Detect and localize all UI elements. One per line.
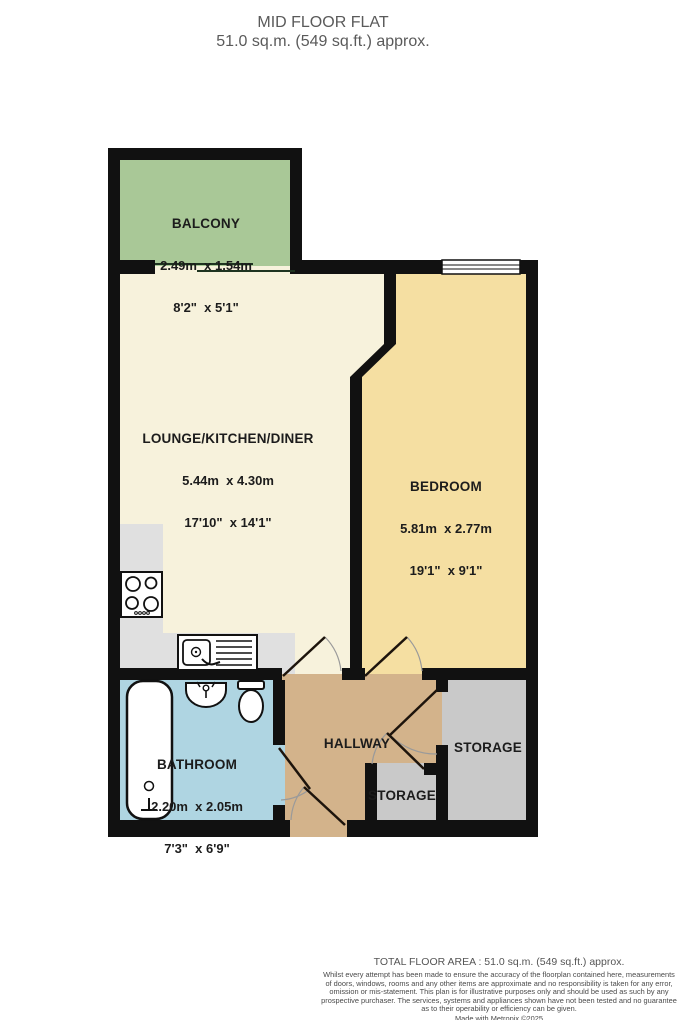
kitchen-sink-icon xyxy=(178,635,257,670)
wall xyxy=(342,668,365,680)
wall xyxy=(350,377,362,668)
window-icon xyxy=(442,260,520,274)
storage-large-label: STORAGE xyxy=(454,741,522,755)
wall xyxy=(108,148,120,274)
hallway-label: HALLWAY xyxy=(324,737,390,751)
plan-footer: TOTAL FLOOR AREA : 51.0 sq.m. (549 sq.ft… xyxy=(295,956,700,1020)
balcony-label: BALCONY 2.49m x 1.54m 8'2" x 5'1" xyxy=(160,189,252,343)
wall xyxy=(273,805,285,825)
wall xyxy=(347,820,538,837)
wall xyxy=(290,148,302,274)
wall xyxy=(108,148,302,160)
wall xyxy=(436,745,448,820)
disclaimer: Whilst every attempt has been made to en… xyxy=(295,971,700,1014)
wall xyxy=(422,668,538,680)
bathroom-label: BATHROOM 2.20m x 2.05m 7'3" x 6'9" xyxy=(151,730,243,884)
wall xyxy=(384,268,396,344)
total-floor-area: TOTAL FLOOR AREA : 51.0 sq.m. (549 sq.ft… xyxy=(295,956,700,968)
basin-icon xyxy=(186,682,226,707)
entry-opening xyxy=(288,818,347,837)
lounge-label: LOUNGE/KITCHEN/DINER 5.44m x 4.30m 17'10… xyxy=(142,404,313,558)
wall xyxy=(108,260,120,837)
hob-icon xyxy=(121,572,162,617)
floorplan-page: MID FLOOR FLAT 51.0 sq.m. (549 sq.ft.) a… xyxy=(0,0,700,1020)
wall xyxy=(526,260,538,837)
credit-line: Made with Metropix ©2025 xyxy=(295,1014,700,1020)
storage-small-door-opening xyxy=(377,763,424,775)
wall xyxy=(293,260,442,274)
storage-small-label: STORAGE xyxy=(368,789,436,803)
bedroom-label: BEDROOM 5.81m x 2.77m 19'1" x 9'1" xyxy=(400,452,492,606)
floorplan-svg xyxy=(0,0,700,1020)
wall xyxy=(273,680,285,745)
wall xyxy=(436,680,448,692)
wall xyxy=(424,763,448,775)
toilet-icon xyxy=(238,681,264,722)
